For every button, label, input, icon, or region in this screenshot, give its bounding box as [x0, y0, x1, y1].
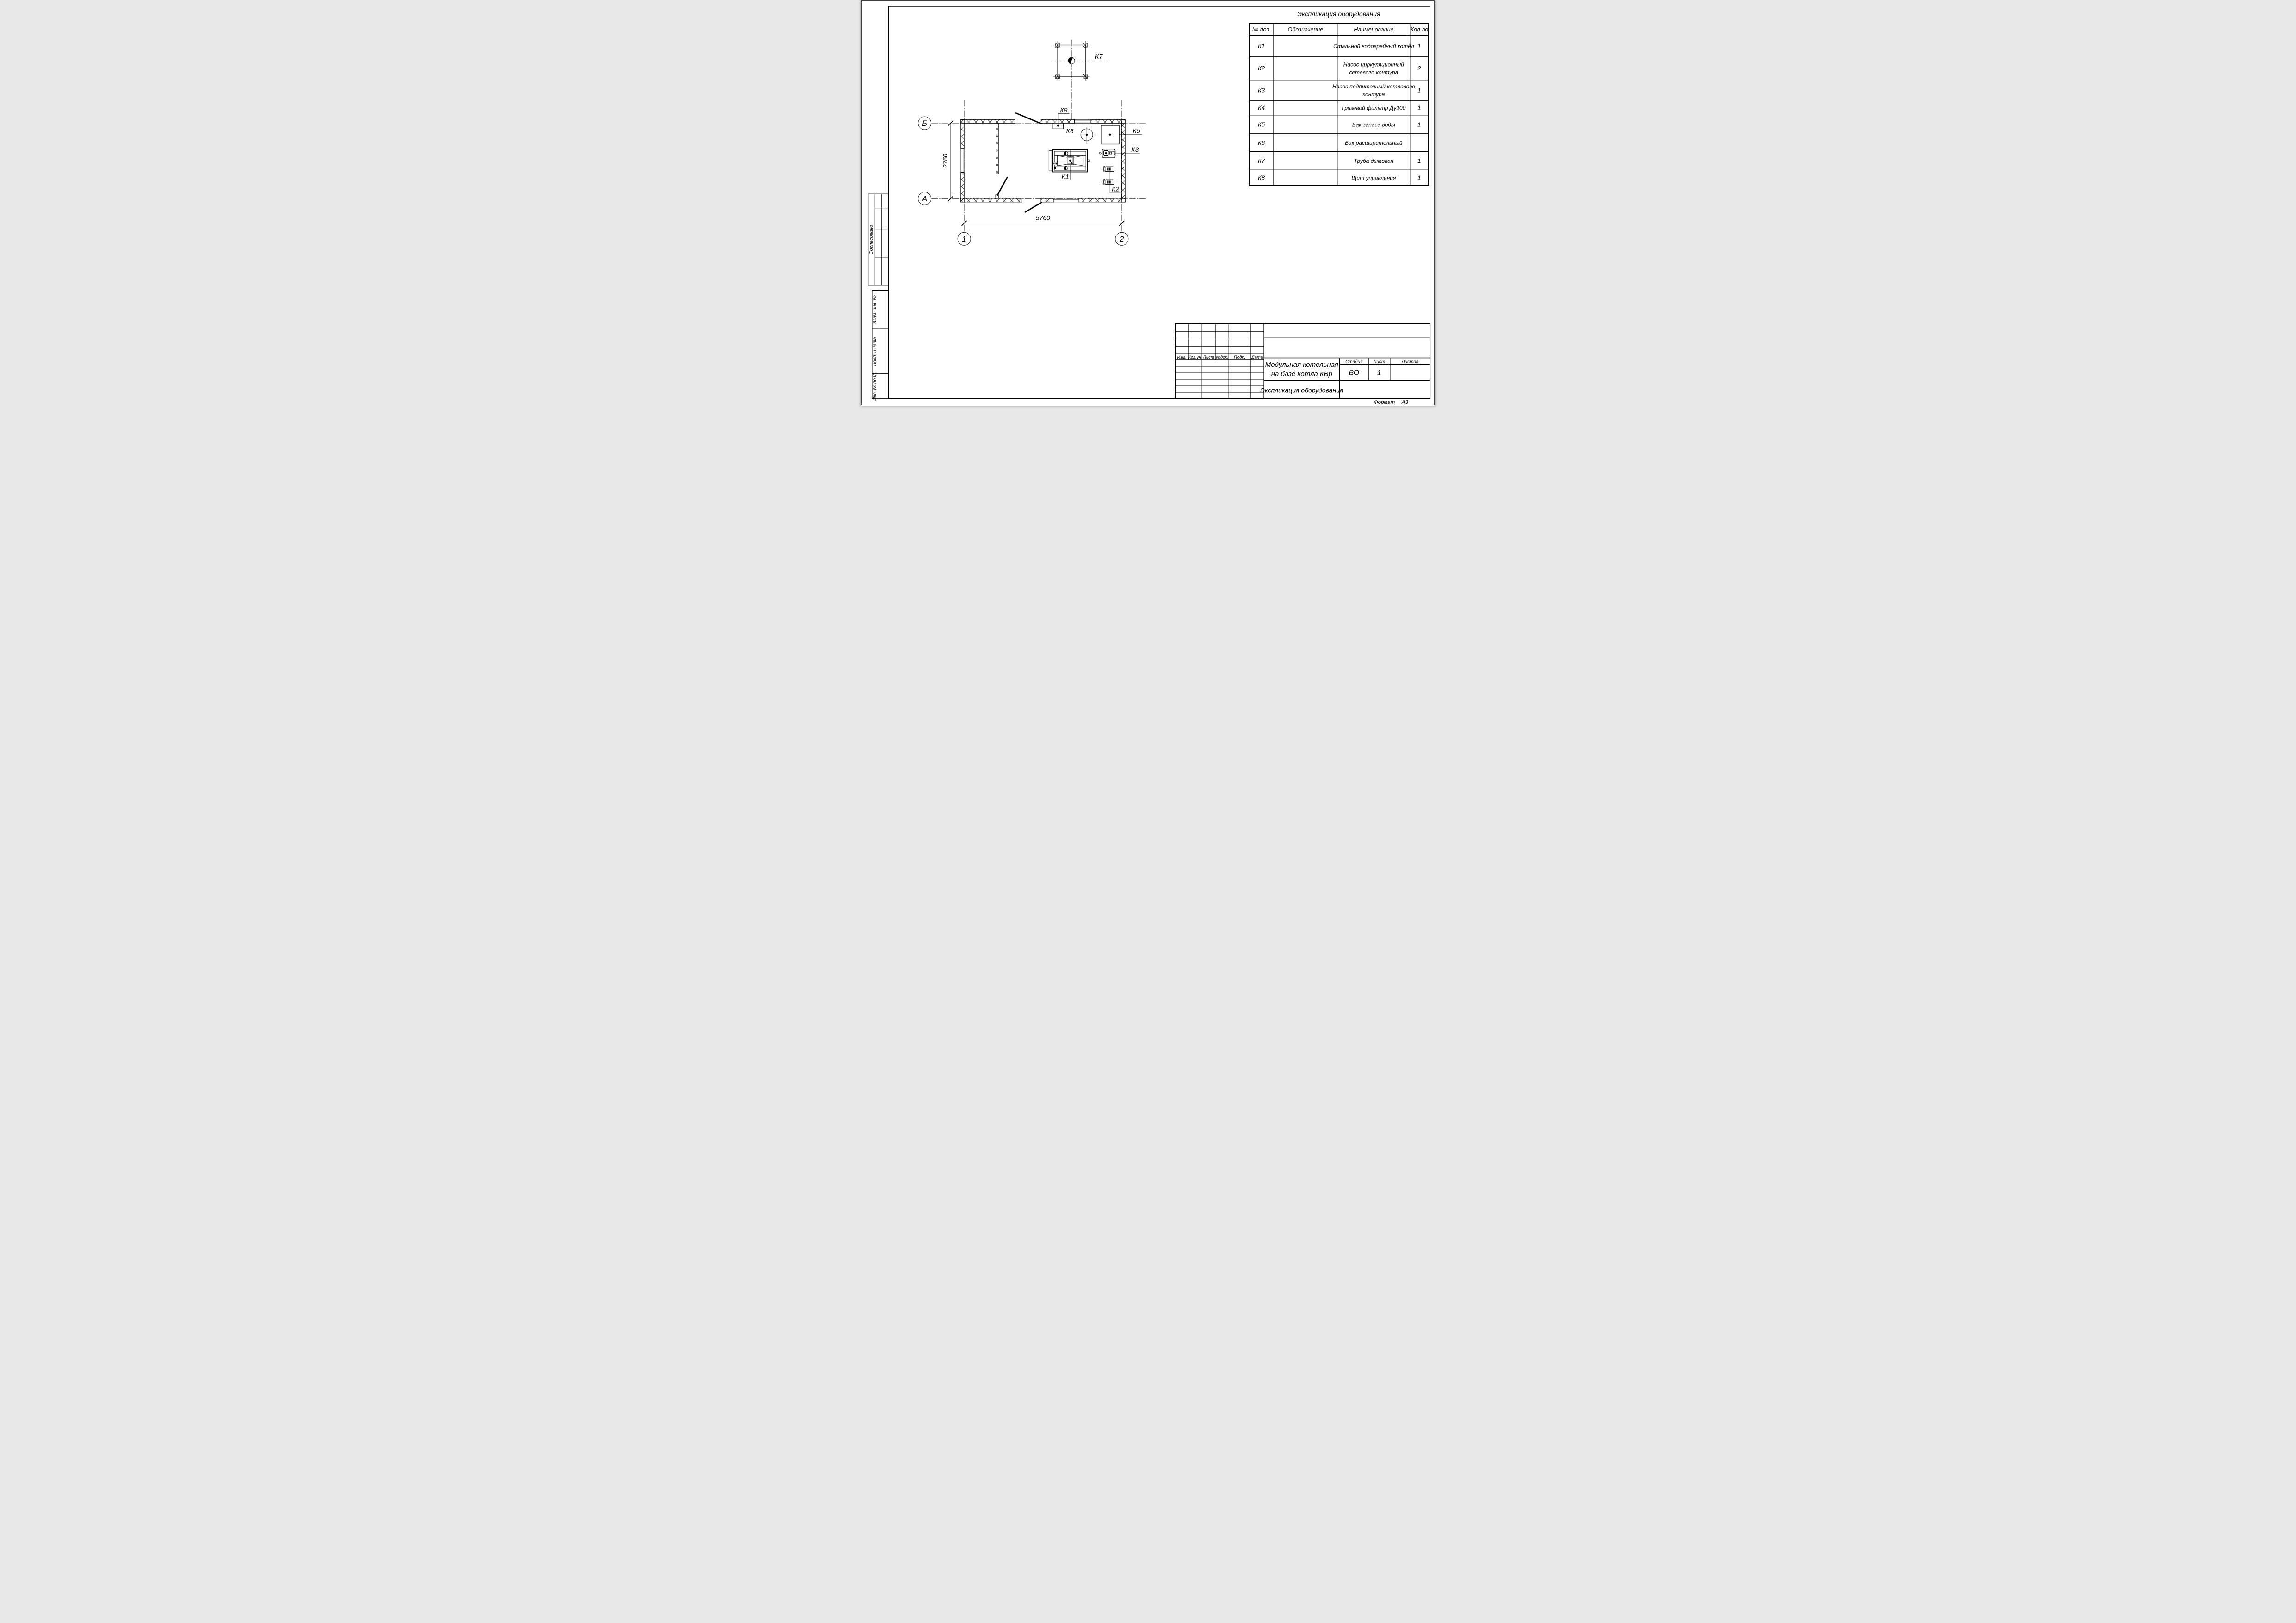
label-k3: К3: [1131, 146, 1139, 153]
door-leaf-interior: [997, 177, 1007, 195]
cell-name-6: Труба дымовая: [1354, 158, 1394, 164]
blueprint-canvas: Согласовано Взам. инв. № Подп. и дата Ин…: [861, 0, 1435, 406]
wall-top-mid: [1041, 119, 1074, 123]
format-value: А3: [1401, 400, 1409, 405]
cell-pos-1: К2: [1258, 65, 1265, 72]
k2-pump-1: [1102, 167, 1114, 172]
cell-name-2a: Насос подпиточный котлового: [1332, 83, 1415, 90]
rev-header-koluch: Кол.уч.: [1188, 355, 1202, 359]
label-k8: К8: [1060, 106, 1067, 114]
partition-wall: [996, 123, 998, 174]
dim-text-height: 2760: [941, 154, 949, 168]
side-strip-label-inv-orig: Инв. № подл.: [873, 372, 878, 401]
cell-name-2b: контура: [1362, 91, 1385, 98]
dimensions: 2760 5760: [941, 121, 1124, 226]
sheets-label: Листов: [1401, 359, 1418, 365]
rev-header-list: Лист: [1202, 355, 1214, 360]
table-header-pos: № поз.: [1252, 26, 1271, 33]
cell-qty-4: 1: [1417, 121, 1421, 128]
equipment-table: Экспликация оборудования № поз. Обозначе…: [1249, 10, 1429, 185]
cell-qty-3: 1: [1417, 105, 1421, 112]
cell-name-4: Бак запаса воды: [1352, 121, 1395, 128]
project-title-line1: Модульная котельная: [1265, 361, 1338, 369]
k7-anchor-topright: [1081, 41, 1090, 50]
dim-text-width: 5760: [1036, 214, 1050, 222]
window-bottom: [1054, 198, 1079, 202]
cell-name-1b: сетевого контура: [1349, 69, 1399, 76]
wall-top-left: [961, 119, 1015, 123]
axis-label-2: 2: [1119, 235, 1124, 243]
walls: [961, 119, 1125, 202]
wall-bottom-right: [1079, 198, 1125, 202]
wall-bottom-mid: [1041, 198, 1054, 202]
sheet-value: 1: [1377, 369, 1381, 377]
cell-name-7: Щит управления: [1351, 174, 1396, 181]
side-strip-label-sign-date: Подп. и дата: [873, 337, 878, 366]
k1-handle-dot: [1054, 167, 1056, 169]
cell-qty-2: 1: [1417, 87, 1421, 94]
table-header-name: Наименование: [1354, 26, 1393, 33]
label-k1: К1: [1062, 173, 1069, 180]
label-k2: К2: [1112, 186, 1119, 193]
rev-header-izm: Изм.: [1177, 355, 1186, 360]
cell-pos-3: К4: [1258, 105, 1265, 112]
cell-pos-7: К8: [1258, 174, 1265, 181]
feed-pump-k3-symbol: К3: [1099, 146, 1140, 158]
cell-qty-0: 1: [1417, 43, 1421, 50]
label-k6: К6: [1066, 127, 1074, 135]
wall-left-upper: [961, 119, 964, 149]
control-panel-k8-symbol: К8: [1053, 106, 1070, 129]
doc-title: Экспликация оборудования: [1260, 387, 1343, 394]
drawing-sheet: Согласовано Взам. инв. № Подп. и дата Ин…: [861, 0, 1435, 406]
stage-value: ВО: [1349, 369, 1359, 377]
title-block: Изм. Кол.уч. Лист №док. Подп. Дата Стади…: [1175, 324, 1430, 405]
boiler-k1-symbol: К1: [1049, 150, 1089, 180]
rev-header-podp: Подп.: [1234, 355, 1245, 360]
k7-anchor-topleft: [1053, 41, 1062, 50]
cell-pos-5: К6: [1258, 139, 1265, 146]
stage-label: Стадия: [1345, 359, 1363, 365]
wall-left-lower: [961, 173, 964, 202]
cell-name-1a: Насос циркуляционный: [1343, 62, 1405, 68]
sheet-label: Лист: [1373, 359, 1386, 365]
floor-plan: Б А 1 2 2760 5760: [918, 100, 1147, 245]
rev-header-ndok: №док.: [1216, 355, 1228, 359]
cell-pos-2: К3: [1258, 87, 1265, 94]
k6-dot: [1085, 133, 1088, 136]
k3-motor: [1108, 151, 1114, 155]
wall-right: [1121, 119, 1125, 202]
agreed-box-grid: [875, 194, 888, 285]
rev-header-data: Дата: [1251, 355, 1263, 360]
door-leaf-bottom: [1025, 203, 1041, 212]
project-title-line2: на базе котла КВр: [1271, 370, 1332, 378]
circulation-pumps-k2-symbol: К2: [1102, 167, 1120, 193]
format-label: Формат: [1374, 400, 1395, 405]
side-strip-label-agreed: Согласовано: [868, 225, 874, 254]
table-header-qty: Кол-во: [1411, 26, 1429, 33]
axis-label-b: Б: [922, 119, 927, 128]
cell-qty-7: 1: [1417, 174, 1421, 181]
k7-anchor-bottomright: [1081, 72, 1090, 81]
cell-qty-6: 1: [1417, 157, 1421, 164]
k3-stub-end: [1099, 152, 1101, 154]
cell-pos-6: К7: [1258, 157, 1265, 164]
doors: [997, 113, 1041, 212]
cell-qty-1: 2: [1417, 65, 1421, 72]
k1-stub-right: [1088, 160, 1089, 162]
side-strip: Согласовано Взам. инв. № Подп. и дата Ин…: [868, 194, 889, 401]
side-strip-label-replace-inv: Взам. инв. №: [873, 295, 878, 324]
axis-label-1: 1: [962, 235, 966, 243]
cell-name-0: Стальной водогрейный котёл: [1333, 43, 1414, 50]
k7-anchor-bottomleft: [1053, 72, 1062, 81]
wall-bottom-left: [961, 198, 1022, 202]
cell-name-5: Бак расширительный: [1345, 140, 1403, 146]
table-header-designation: Обозначение: [1288, 26, 1324, 33]
cell-pos-4: К5: [1258, 121, 1265, 128]
axis-label-a: А: [922, 195, 927, 203]
cell-pos-0: К1: [1258, 43, 1265, 50]
label-k7: К7: [1095, 53, 1103, 61]
cell-name-3: Грязевой фильтр Ду100: [1342, 105, 1405, 112]
label-k5: К5: [1133, 127, 1140, 135]
expansion-tank-k6-symbol: К6: [1062, 127, 1096, 144]
dim-ticks: [948, 121, 1124, 226]
window-top: [1075, 119, 1091, 123]
door-leaf-top: [1016, 113, 1041, 124]
k2-pump-2: [1102, 180, 1114, 185]
window-left: [961, 149, 964, 173]
wall-top-right: [1091, 119, 1125, 123]
table-title: Экспликация оборудования: [1297, 10, 1380, 18]
